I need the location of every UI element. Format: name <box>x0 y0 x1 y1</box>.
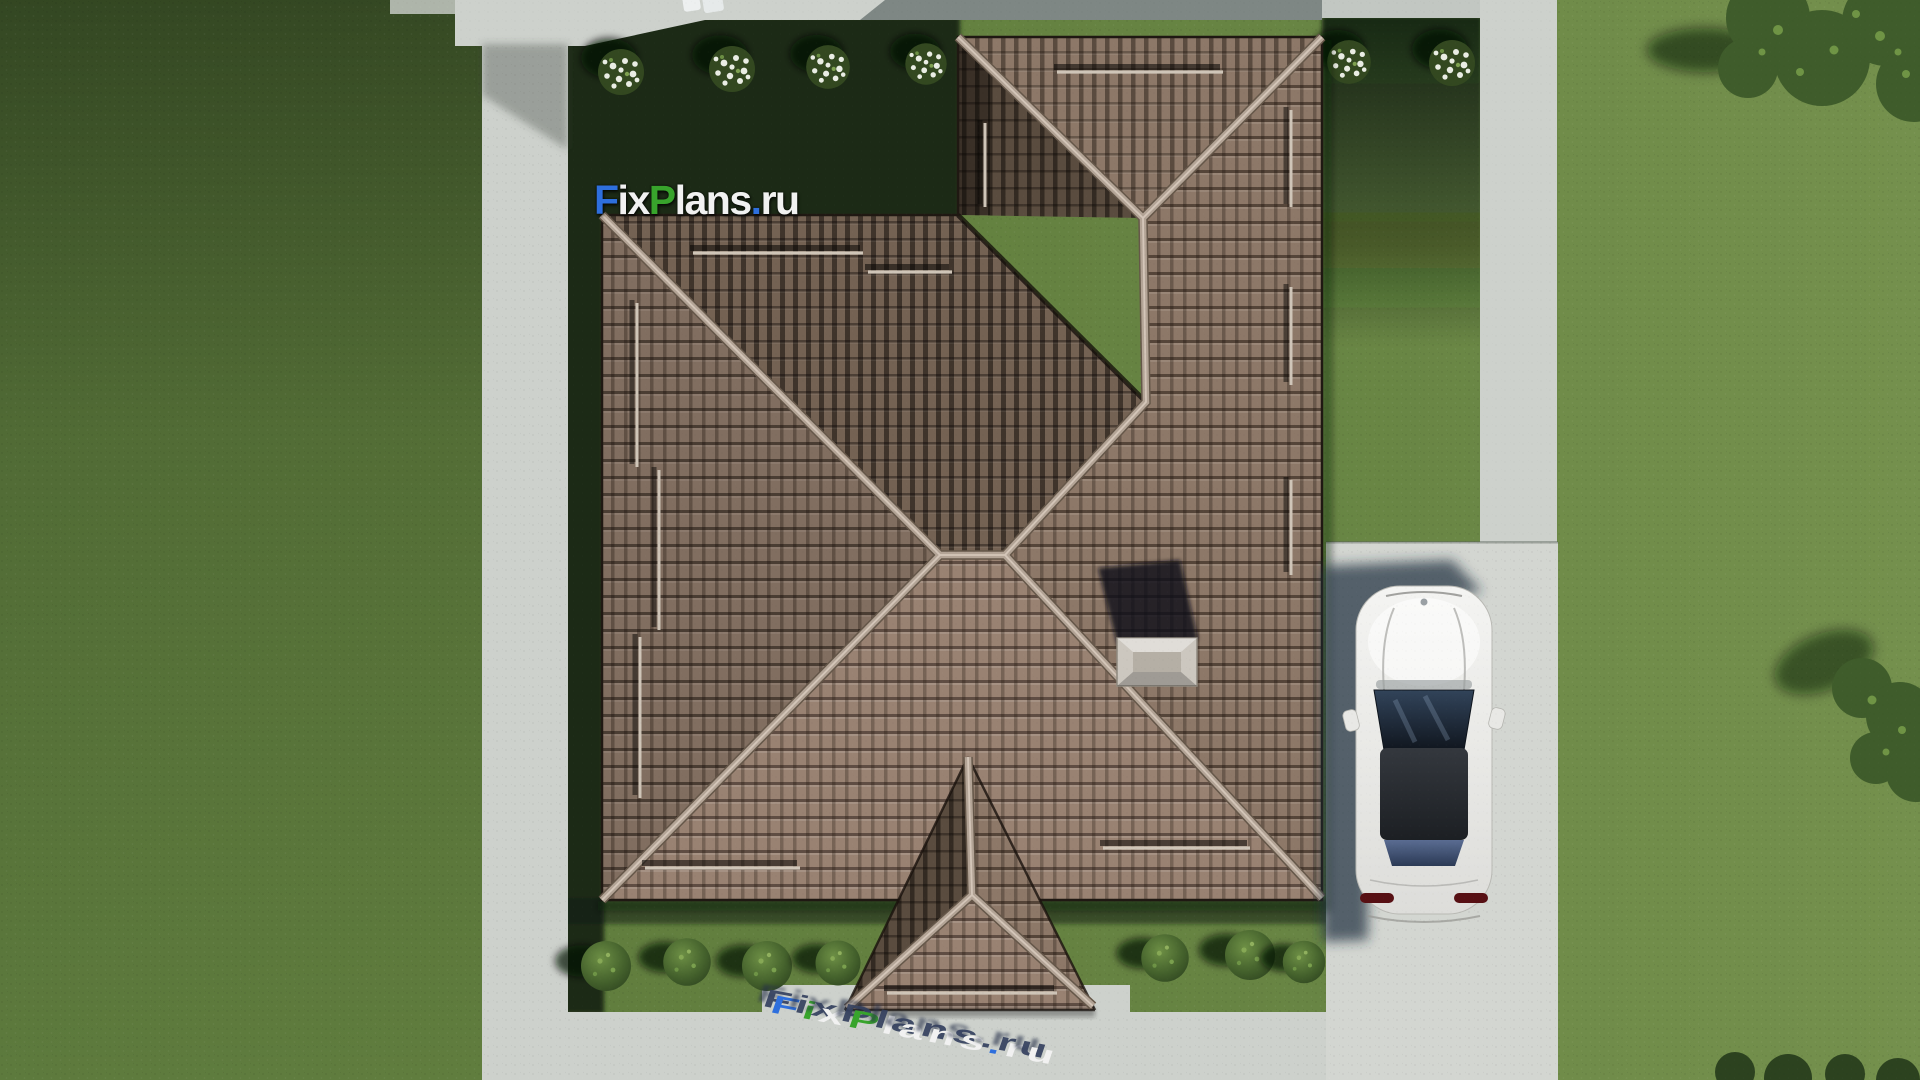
watermark-part: ix <box>618 177 649 223</box>
watermark-part: ru <box>761 177 799 223</box>
fixplans-watermark: FixPlans.ru <box>594 180 799 221</box>
watermark-part: lans <box>675 177 751 223</box>
scene-canvas <box>0 0 1920 1080</box>
watermark-part: . <box>751 177 761 223</box>
watermark-3d-letter: n <box>925 1021 960 1050</box>
watermark-3d-letter: u <box>1024 1039 1059 1068</box>
watermark-3d-letter: P <box>845 1006 882 1036</box>
grain-overlay <box>0 0 1920 1080</box>
watermark-part: P <box>649 177 675 223</box>
watermark-part: F <box>594 177 618 223</box>
aerial-render: FixPlans.ru F i x P l a n s . r u <box>0 0 1920 1080</box>
watermark-3d-letter: s <box>956 1027 989 1056</box>
watermark-3d-letter: x <box>816 1001 849 1030</box>
watermark-3d-letter: a <box>896 1016 929 1045</box>
watermark-3d-letter: r <box>1002 1035 1027 1063</box>
